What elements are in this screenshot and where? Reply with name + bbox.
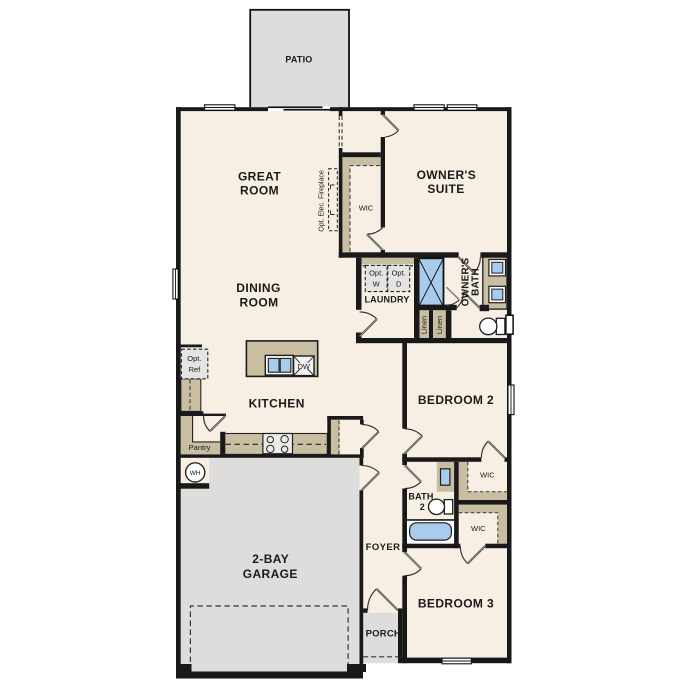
svg-text:BATH: BATH (471, 268, 482, 296)
svg-text:GARAGE: GARAGE (243, 567, 298, 581)
svg-text:WIC: WIC (480, 470, 495, 479)
svg-text:WIC: WIC (471, 524, 486, 533)
svg-text:DINING: DINING (236, 281, 280, 295)
svg-text:PORCH: PORCH (366, 629, 401, 640)
svg-text:FOYER: FOYER (366, 542, 401, 553)
svg-text:Linen: Linen (435, 316, 444, 334)
svg-text:Ref: Ref (189, 365, 202, 374)
svg-text:2: 2 (420, 502, 425, 512)
svg-text:ROOM: ROOM (240, 295, 279, 309)
svg-text:W: W (373, 279, 381, 288)
svg-text:Opt.: Opt. (392, 268, 406, 277)
svg-text:KITCHEN: KITCHEN (249, 397, 305, 411)
svg-text:SUITE: SUITE (427, 182, 464, 196)
svg-text:OWNER'S: OWNER'S (417, 168, 477, 182)
svg-text:2-BAY: 2-BAY (252, 552, 289, 566)
svg-text:GREAT: GREAT (238, 170, 281, 184)
svg-text:BATH: BATH (408, 492, 433, 502)
svg-text:WIC: WIC (359, 204, 374, 213)
svg-text:D: D (396, 279, 402, 288)
svg-text:Opt.: Opt. (369, 268, 383, 277)
svg-text:BEDROOM 3: BEDROOM 3 (418, 597, 494, 611)
svg-text:PATIO: PATIO (285, 55, 312, 65)
svg-text:ROOM: ROOM (240, 183, 279, 197)
svg-text:BEDROOM 2: BEDROOM 2 (418, 393, 494, 407)
svg-text:Opt. Elec. Fireplace: Opt. Elec. Fireplace (319, 170, 326, 232)
svg-text:Pantry: Pantry (189, 443, 211, 452)
svg-text:Opt.: Opt. (187, 354, 201, 363)
svg-text:Linen: Linen (420, 316, 429, 334)
svg-text:WH: WH (190, 470, 201, 477)
svg-text:DW: DW (297, 362, 310, 371)
svg-text:LAUNDRY: LAUNDRY (364, 294, 409, 304)
